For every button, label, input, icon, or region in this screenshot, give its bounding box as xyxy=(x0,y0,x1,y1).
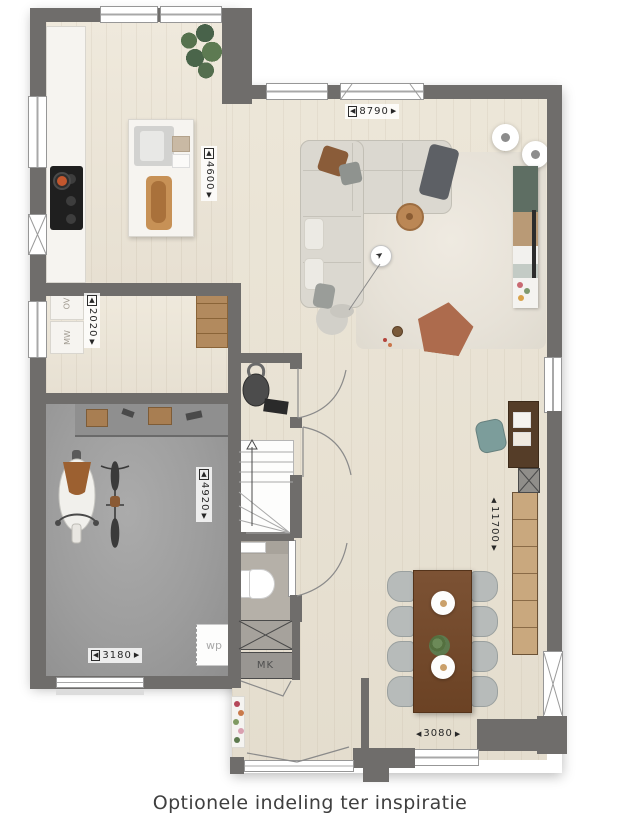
wall-core-right xyxy=(290,595,302,622)
wall-bottom-a xyxy=(353,748,415,768)
staircase xyxy=(238,440,294,534)
dim-value: 3180 xyxy=(102,651,131,661)
garage-door xyxy=(56,677,144,688)
shaft-box xyxy=(238,620,293,650)
toy-dot xyxy=(388,343,392,347)
candle xyxy=(440,664,447,671)
coffee-table-center xyxy=(406,213,413,220)
window-left xyxy=(28,96,47,168)
dimension-living-depth-11700: ▲ 11700 ▼ xyxy=(486,495,502,554)
dining-chair xyxy=(387,606,414,637)
meter-cupboard: MK xyxy=(238,652,293,679)
window-right-bottom xyxy=(543,651,563,717)
dim-arrow-right: ▶ xyxy=(391,108,396,115)
garage-door-step xyxy=(56,690,144,695)
wall-hall-garage-divider xyxy=(30,393,228,404)
wall-garage-left xyxy=(30,404,46,688)
wall-bottom-b xyxy=(477,719,539,751)
wall-shelf-unit xyxy=(512,492,538,655)
heat-pump-label: wp xyxy=(206,639,222,652)
washbasin xyxy=(240,542,266,553)
dim-arrow-down: ▼ xyxy=(206,192,211,199)
window-right xyxy=(544,357,562,413)
dim-arrow-down: ▼ xyxy=(89,339,94,346)
wall-left xyxy=(30,168,46,214)
wall-bottom-tab xyxy=(363,766,389,782)
dim-arrow-up: ▲ xyxy=(204,148,213,159)
kitchen-counter xyxy=(46,26,86,283)
dimension-width-8790: ◀ 8790 ▶ xyxy=(345,104,399,119)
dining-chair xyxy=(471,606,498,637)
dim-value: 8790 xyxy=(359,107,388,117)
dim-value: 4920 xyxy=(199,482,209,511)
wall-right xyxy=(547,411,562,653)
workbench-stool xyxy=(86,409,108,427)
dimension-garage-depth-4920: ▲ 4920 ▼ xyxy=(196,467,212,522)
dining-chair xyxy=(387,676,414,707)
dim-arrow-down: ▼ xyxy=(491,545,496,552)
wall-core-right xyxy=(290,475,302,538)
window-kitchen-top xyxy=(160,6,222,23)
dim-value: 4600 xyxy=(204,161,214,190)
flower-dot xyxy=(233,719,239,725)
dim-value: 3080 xyxy=(423,729,452,739)
dining-chair xyxy=(387,571,414,602)
heat-pump-box: wp xyxy=(196,624,232,666)
island-item xyxy=(172,136,190,152)
sideboard-segment xyxy=(513,166,538,212)
desk-papers xyxy=(513,412,531,428)
dimension-kitchen-depth-4600: ▲ 4600 ▼ xyxy=(201,146,217,201)
dimension-garage-width-3180: ◀ 3180 ▶ xyxy=(88,648,142,663)
oven-label: OV xyxy=(62,298,71,310)
window-bottom xyxy=(413,749,479,766)
flower-dot xyxy=(234,737,240,743)
dim-arrow-down: ▼ xyxy=(201,513,206,520)
wall-core-right-lower xyxy=(292,620,300,680)
wall-core-right xyxy=(290,353,302,369)
dim-arrow-left: ◀ xyxy=(416,731,421,738)
wall-left xyxy=(30,8,46,96)
desk-papers xyxy=(513,432,531,446)
wall-entry-dining-divider xyxy=(361,678,369,750)
island-item xyxy=(172,154,190,168)
burner xyxy=(66,214,76,224)
window-kitchen-top xyxy=(100,6,158,23)
sofa-cushion-line xyxy=(303,216,361,217)
dim-arrow-up: ▲ xyxy=(87,295,96,306)
door-left xyxy=(28,214,47,255)
front-door-opening xyxy=(244,760,354,772)
toy-stool xyxy=(392,326,403,337)
dim-arrow-left: ◀ xyxy=(348,106,357,117)
burner xyxy=(66,196,76,206)
sink-basin xyxy=(140,131,164,161)
wall-spine xyxy=(228,283,241,688)
wall-core-right xyxy=(290,417,302,428)
kitchen-plant xyxy=(174,22,224,84)
microwave-label: MW xyxy=(63,330,72,345)
window-living-top xyxy=(266,83,328,100)
dimension-hall-depth-2020: ▲ 2020 ▼ xyxy=(84,293,100,348)
sofa-cushion-line xyxy=(402,143,403,211)
dim-arrow-up: ▲ xyxy=(491,497,496,504)
plan-caption: Optionele indeling ter inspiratie xyxy=(0,792,620,813)
flower-dot xyxy=(234,701,240,707)
flower-dot xyxy=(517,282,523,288)
floorplan: ➤ OV MW xyxy=(0,0,620,813)
dimension-living-width-3080: ◀ 3080 ▶ xyxy=(413,727,463,741)
flower-dot xyxy=(238,728,244,734)
wall-entry-stub xyxy=(230,757,244,774)
shaft-box-right xyxy=(518,468,540,493)
flower-dot xyxy=(238,710,244,716)
wall-corner-block xyxy=(222,8,252,104)
dining-chair xyxy=(471,676,498,707)
pendant-lamp-center xyxy=(531,150,540,159)
tv-screen xyxy=(532,210,536,278)
microwave-appliance: MW xyxy=(50,321,84,354)
dining-chair xyxy=(471,641,498,672)
dim-arrow-right: ▶ xyxy=(134,652,139,659)
pan-food xyxy=(57,176,67,186)
table-plant xyxy=(429,635,450,656)
pendant-lamp-center xyxy=(501,133,510,142)
floor-lamp-base xyxy=(330,304,354,318)
window-left-hall xyxy=(28,301,47,358)
dim-value: 2020 xyxy=(87,308,97,337)
flower-dot xyxy=(518,295,524,301)
wall-corner-bottom-right xyxy=(537,716,567,754)
dim-arrow-left: ◀ xyxy=(91,650,100,661)
wall-kitchen-hall-divider xyxy=(30,283,228,296)
candle xyxy=(440,600,447,607)
dim-value: 11700 xyxy=(489,506,499,543)
wall-stairs-toilet-divider xyxy=(238,532,294,541)
dining-chair xyxy=(387,641,414,672)
window-living-top xyxy=(340,83,424,100)
flower-dot xyxy=(524,288,530,294)
dim-arrow-up: ▲ xyxy=(199,469,208,480)
workbench-stool xyxy=(148,407,172,425)
bread xyxy=(151,181,166,223)
pillow-white xyxy=(304,218,324,250)
toy-dot xyxy=(383,338,387,342)
pillow-gray xyxy=(338,161,363,186)
dim-arrow-right: ▶ xyxy=(455,731,460,738)
toilet-door-leaf xyxy=(288,540,296,597)
wall-right xyxy=(547,93,562,359)
meter-cupboard-label: MK xyxy=(257,660,274,671)
dining-chair xyxy=(471,571,498,602)
hall-cabinet xyxy=(196,288,228,348)
